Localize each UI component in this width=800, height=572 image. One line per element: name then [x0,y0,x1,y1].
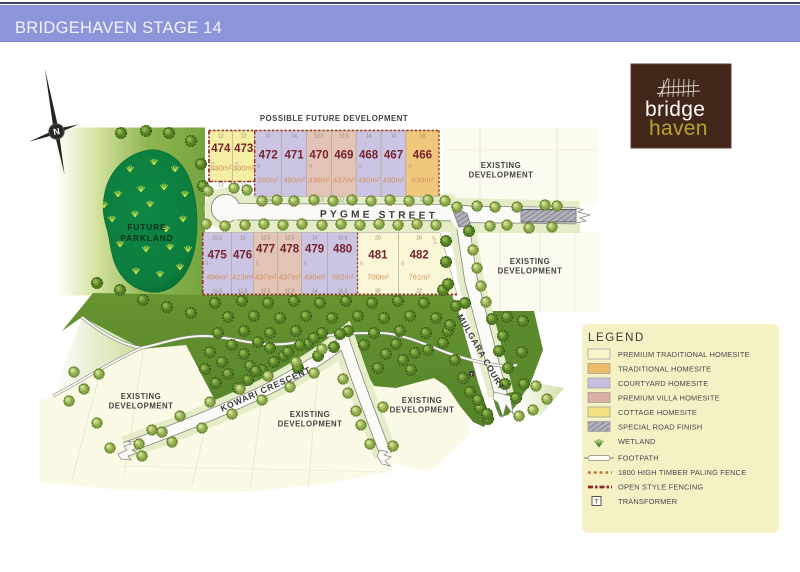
svg-text:761m²: 761m² [408,273,430,282]
svg-text:12.5: 12.5 [285,236,295,242]
svg-text:490m²: 490m² [383,176,405,185]
svg-text:475: 475 [208,250,228,262]
svg-text:490m²: 490m² [283,176,305,185]
svg-text:12.5: 12.5 [314,134,324,140]
svg-text:27.5: 27.5 [211,161,216,170]
svg-text:T: T [470,372,473,377]
svg-text:32: 32 [400,260,405,265]
svg-text:16.6: 16.6 [338,236,348,242]
svg-text:20: 20 [375,236,381,242]
svg-text:437m²: 437m² [255,273,277,282]
svg-text:FUTURE: FUTURE [127,223,166,232]
svg-text:16: 16 [265,134,271,140]
svg-text:481: 481 [368,250,388,262]
svg-text:12.5: 12.5 [339,134,349,140]
svg-text:35: 35 [256,163,261,168]
svg-text:482: 482 [410,250,429,262]
svg-text:35: 35 [308,163,313,168]
svg-text:473: 473 [234,143,253,155]
svg-text:12.5: 12.5 [261,289,271,295]
svg-text:470: 470 [309,150,328,162]
svg-text:WETLAND: WETLAND [618,437,656,446]
svg-text:12: 12 [218,134,224,140]
svg-text:32: 32 [303,260,308,265]
svg-text:469: 469 [334,150,353,162]
svg-text:14: 14 [366,134,372,140]
svg-text:PREMIUM TRADITIONAL HOMESITE: PREMIUM TRADITIONAL HOMESITE [618,350,750,359]
svg-text:LEGEND: LEGEND [588,332,645,344]
svg-text:12.5: 12.5 [261,236,271,242]
svg-text:PREMIUM VILLA HOMESITE: PREMIUM VILLA HOMESITE [618,394,720,403]
svg-text:35: 35 [358,163,363,168]
svg-text:1800 HIGH TIMBER PALING FENCE: 1800 HIGH TIMBER PALING FENCE [618,468,746,477]
svg-text:468: 468 [359,150,379,162]
svg-text:32: 32 [204,260,209,265]
svg-text:437m²: 437m² [279,273,301,282]
svg-text:COTTAGE HOMESITE: COTTAGE HOMESITE [618,408,697,417]
svg-text:474: 474 [211,143,231,155]
svg-text:FOOTPATH: FOOTPATH [618,454,659,463]
svg-text:32: 32 [255,260,260,265]
svg-text:12: 12 [241,134,247,140]
svg-text:13: 13 [218,183,224,189]
svg-text:560m²: 560m² [257,176,279,185]
svg-text:496m²: 496m² [206,273,228,282]
svg-text:OPEN STYLE FENCING: OPEN STYLE FENCING [618,483,703,492]
svg-text:476: 476 [233,250,252,262]
svg-text:423m²: 423m² [232,273,254,282]
svg-text:480: 480 [333,244,352,256]
svg-text:472: 472 [259,150,278,162]
svg-text:27.5: 27.5 [234,161,239,170]
svg-text:T: T [595,499,599,506]
svg-text:467: 467 [384,150,403,162]
svg-text:14: 14 [312,236,318,242]
svg-text:PARKLAND: PARKLAND [120,234,173,243]
svg-text:14: 14 [291,134,297,140]
svg-text:haven: haven [649,117,708,140]
svg-text:479: 479 [305,244,324,256]
svg-text:35: 35 [407,163,412,168]
svg-text:490m²: 490m² [304,273,326,282]
svg-text:POSSIBLE FUTURE DEVELOPMENT: POSSIBLE FUTURE DEVELOPMENT [260,114,408,123]
svg-text:TRANSFORMER: TRANSFORMER [618,497,677,506]
svg-text:466: 466 [413,150,432,162]
svg-text:478: 478 [280,244,300,256]
svg-text:TRADITIONAL HOMESITE: TRADITIONAL HOMESITE [618,365,711,374]
svg-text:438m²: 438m² [308,176,330,185]
svg-text:15.5: 15.5 [212,236,222,242]
svg-text:477: 477 [256,244,275,256]
svg-text:18: 18 [420,134,426,140]
svg-text:13: 13 [240,236,246,242]
svg-text:COURTYARD HOMESITE: COURTYARD HOMESITE [618,379,708,388]
svg-text:14: 14 [391,134,397,140]
svg-text:16: 16 [416,236,422,242]
svg-text:PYGME STREET: PYGME STREET [320,209,438,222]
svg-text:630m²: 630m² [412,176,434,185]
svg-text:490m²: 490m² [358,176,380,185]
svg-text:32: 32 [359,260,364,265]
svg-text:SPECIAL ROAD FINISH: SPECIAL ROAD FINISH [618,423,702,432]
svg-text:12.5: 12.5 [285,289,295,295]
svg-text:437m²: 437m² [333,176,355,185]
svg-text:582m²: 582m² [332,273,354,282]
svg-text:471: 471 [285,150,305,162]
svg-text:700m²: 700m² [367,273,389,282]
